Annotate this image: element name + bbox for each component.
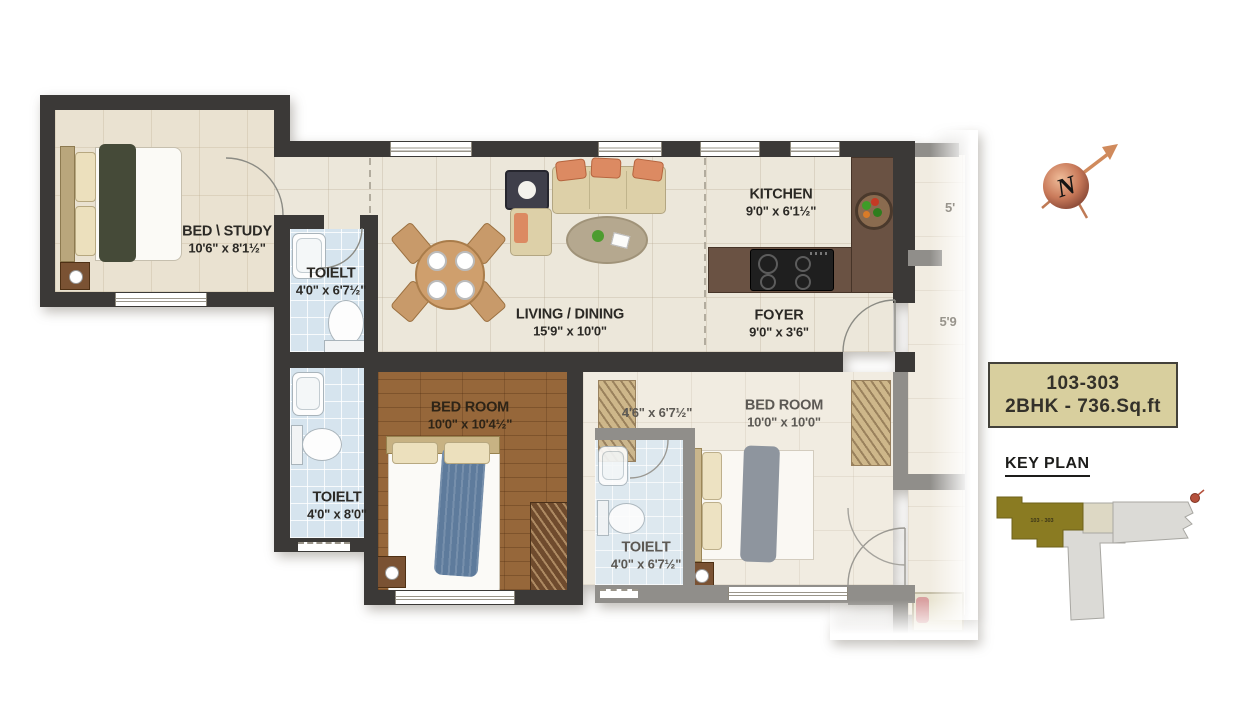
pillow — [444, 442, 490, 464]
vent-window — [600, 589, 638, 598]
room-label-foyer: FOYER 9'0" x 3'6" — [749, 308, 809, 341]
sofa-cushion — [590, 157, 621, 179]
wall — [378, 352, 843, 372]
room-name: BED ROOM — [428, 400, 512, 417]
wall — [895, 352, 915, 372]
room-dims: 4'0" x 6'7½" — [611, 557, 681, 573]
passage-dims-label: 4'6" x 6'7½" — [622, 405, 692, 421]
unit-info-badge: 103-303 2BHK - 736.Sq.ft — [988, 362, 1178, 428]
window — [395, 591, 515, 604]
wall — [274, 215, 290, 368]
room-dims: 4'6" x 6'7½" — [622, 405, 692, 421]
key-plan-unit-label: 103 - 303 — [1030, 518, 1053, 524]
second-bed-blanket — [740, 445, 780, 562]
room-name: LIVING / DINING — [516, 307, 624, 324]
nightstand — [376, 556, 406, 588]
toilet-icon — [302, 428, 342, 461]
key-plan-title: KEY PLAN — [1005, 455, 1090, 477]
room-name: FOYER — [749, 308, 809, 325]
room-name: KITCHEN — [746, 187, 816, 204]
room-name: TOIELT — [307, 490, 367, 507]
wall-faded — [595, 428, 695, 440]
room-dims: 4'0" x 6'7½" — [296, 283, 366, 299]
key-plan-wing-middle — [1083, 503, 1113, 533]
toilet-icon — [608, 503, 645, 534]
room-name: BED \ STUDY — [182, 224, 272, 241]
master-bed-throw — [434, 447, 487, 578]
room-label-living-dining: LIVING / DINING 15'9" x 10'0" — [516, 307, 624, 340]
wall — [40, 95, 290, 110]
adjacent-dim-label: 5'9 — [940, 314, 957, 330]
room-dims: 5' — [945, 200, 955, 216]
window — [115, 293, 207, 306]
bed-study-headboard — [60, 146, 75, 262]
stove-icon — [750, 249, 834, 291]
tv-unit — [505, 170, 549, 210]
room-dims: 10'6" x 8'1½" — [182, 241, 272, 257]
room-dims: 9'0" x 6'1½" — [746, 204, 816, 220]
washbasin-icon — [292, 372, 324, 416]
room-dims: 4'0" x 8'0" — [307, 507, 367, 523]
room-name: BED ROOM — [745, 398, 823, 415]
pillow — [702, 452, 722, 500]
kitchen-sink-icon — [855, 192, 893, 230]
wall — [40, 95, 55, 307]
wardrobe — [851, 380, 891, 466]
north-compass-icon: N — [1020, 140, 1120, 230]
armchair — [510, 208, 552, 256]
room-label-bedroom-second: BED ROOM 10'0" x 10'0" — [745, 398, 823, 431]
wall — [274, 215, 324, 229]
pillow — [702, 502, 722, 550]
room-label-bedroom-master: BED ROOM 10'0" x 10'4½" — [428, 400, 512, 433]
pillow — [75, 206, 96, 256]
window — [390, 142, 472, 156]
key-plan-tower-stem — [1058, 530, 1125, 620]
sofa-cushion — [555, 158, 587, 182]
unit-type-area: 2BHK - 736.Sq.ft — [1005, 396, 1161, 418]
window — [790, 142, 840, 156]
wall — [567, 372, 583, 605]
wall — [893, 141, 915, 303]
fade-overlay — [830, 600, 978, 640]
window — [598, 142, 662, 156]
room-dims: 10'0" x 10'0" — [745, 415, 823, 431]
wall — [364, 538, 378, 605]
room-name: TOIELT — [611, 540, 681, 557]
room-label-kitchen: KITCHEN 9'0" x 6'1½" — [746, 187, 816, 220]
rug — [566, 216, 648, 264]
bed-study-blanket — [99, 144, 136, 262]
key-plan-diagram: 103 - 303 — [992, 486, 1207, 636]
adjacent-dim-label: 5' — [945, 200, 955, 216]
unit-number: 103-303 — [1046, 373, 1119, 395]
window — [700, 142, 760, 156]
room-dims: 9'0" x 3'6" — [749, 325, 809, 341]
pillow — [392, 442, 438, 464]
room-label-bed-study: BED \ STUDY 10'6" x 8'1½" — [182, 224, 272, 257]
room-label-toilet-master: TOIELT 4'0" x 8'0" — [307, 490, 367, 523]
window — [728, 587, 848, 600]
wall — [274, 368, 290, 552]
room-dims: 10'0" x 10'4½" — [428, 417, 512, 433]
wardrobe — [530, 502, 568, 594]
pillow — [75, 152, 96, 202]
floor-plan-canvas: BED \ STUDY 10'6" x 8'1½" TOIELT 4'0" x … — [0, 0, 1240, 720]
room-dims: 15'9" x 10'0" — [516, 324, 624, 340]
washbasin-icon — [598, 446, 628, 486]
wall-faded — [893, 372, 908, 490]
dining-table — [415, 240, 485, 310]
room-dims: 5'9 — [940, 314, 957, 330]
wall-faded — [683, 428, 695, 588]
wall — [274, 352, 378, 368]
key-plan-wing-right — [1113, 502, 1193, 543]
sofa-cushion — [632, 158, 664, 182]
nightstand — [60, 262, 90, 290]
vent-window — [298, 542, 350, 551]
room-name: TOIELT — [296, 266, 366, 283]
room-label-toilet-top: TOIELT 4'0" x 6'7½" — [296, 266, 366, 299]
room-label-toilet-second: TOIELT 4'0" x 6'7½" — [611, 540, 681, 573]
